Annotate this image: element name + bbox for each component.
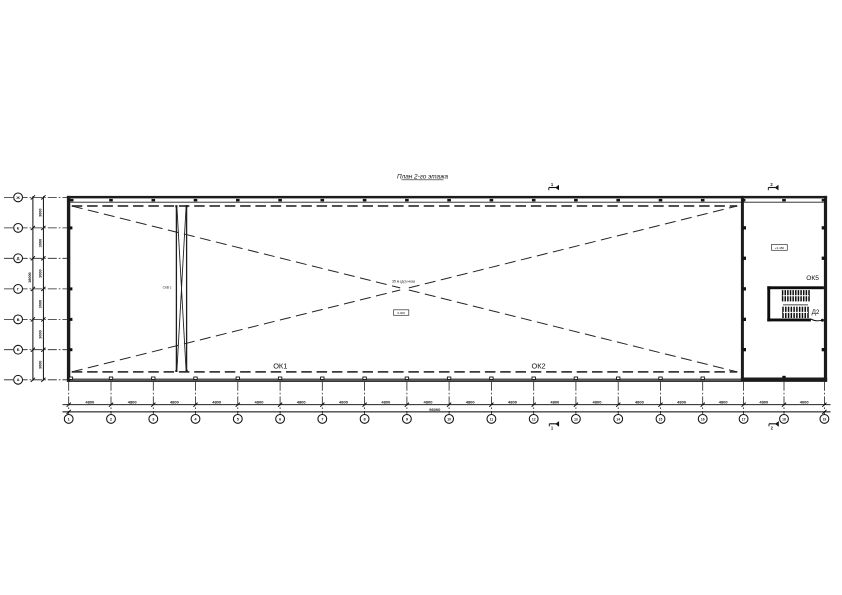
svg-text:4800: 4800 bbox=[128, 400, 138, 405]
svg-text:19: 19 bbox=[823, 417, 827, 421]
svg-text:12: 12 bbox=[532, 417, 536, 421]
svg-text:Ж: Ж bbox=[15, 196, 20, 200]
svg-text:4000: 4000 bbox=[800, 400, 810, 405]
svg-text:4800: 4800 bbox=[297, 400, 307, 405]
svg-text:4800: 4800 bbox=[170, 400, 180, 405]
svg-text:Д2: Д2 bbox=[812, 309, 820, 316]
svg-text:3000: 3000 bbox=[38, 361, 42, 369]
svg-text:4800: 4800 bbox=[550, 400, 560, 405]
svg-text:0.000: 0.000 bbox=[397, 311, 405, 315]
svg-text:В: В bbox=[17, 318, 20, 322]
svg-text:4800: 4800 bbox=[719, 400, 729, 405]
svg-text:14: 14 bbox=[616, 417, 620, 421]
svg-text:4800: 4800 bbox=[424, 400, 434, 405]
svg-text:35 м (до) низа: 35 м (до) низа bbox=[392, 280, 415, 284]
svg-text:3000: 3000 bbox=[38, 239, 42, 247]
svg-text:15: 15 bbox=[659, 417, 663, 421]
svg-text:7: 7 bbox=[321, 416, 323, 421]
svg-text:10: 10 bbox=[447, 417, 451, 421]
svg-text:17: 17 bbox=[742, 417, 746, 421]
svg-text:18000: 18000 bbox=[28, 272, 32, 283]
svg-text:4800: 4800 bbox=[635, 400, 645, 405]
svg-text:А: А bbox=[17, 378, 20, 382]
svg-text:4800: 4800 bbox=[381, 400, 391, 405]
svg-text:ОК5: ОК5 bbox=[806, 275, 819, 282]
svg-text:4800: 4800 bbox=[593, 400, 603, 405]
svg-text:4800: 4800 bbox=[339, 400, 349, 405]
svg-text:11: 11 bbox=[490, 417, 494, 421]
svg-text:+3.480: +3.480 bbox=[775, 246, 785, 250]
svg-text:13: 13 bbox=[574, 417, 578, 421]
svg-text:4800: 4800 bbox=[677, 400, 687, 405]
svg-text:4800: 4800 bbox=[255, 400, 265, 405]
svg-text:ОК2: ОК2 bbox=[532, 361, 546, 370]
svg-text:3000: 3000 bbox=[38, 269, 42, 277]
svg-text:3000: 3000 bbox=[38, 330, 42, 338]
svg-text:16: 16 bbox=[701, 417, 705, 421]
svg-text:4800: 4800 bbox=[508, 400, 518, 405]
svg-text:Д: Д bbox=[17, 257, 20, 261]
svg-text:96000: 96000 bbox=[429, 407, 441, 412]
svg-text:ОК1: ОК1 bbox=[273, 361, 287, 370]
svg-text:План 2-го этажа: План 2-го этажа bbox=[397, 173, 449, 180]
svg-text:3000: 3000 bbox=[38, 208, 42, 216]
svg-text:4800: 4800 bbox=[466, 400, 476, 405]
svg-text:18: 18 bbox=[782, 417, 786, 421]
svg-text:4800: 4800 bbox=[212, 400, 222, 405]
svg-text:4800: 4800 bbox=[85, 400, 95, 405]
svg-text:4800: 4800 bbox=[759, 400, 769, 405]
svg-text:Б: Б bbox=[17, 348, 20, 352]
svg-text:3000: 3000 bbox=[38, 300, 42, 308]
svg-text:СхВ с: СхВ с bbox=[163, 285, 172, 289]
